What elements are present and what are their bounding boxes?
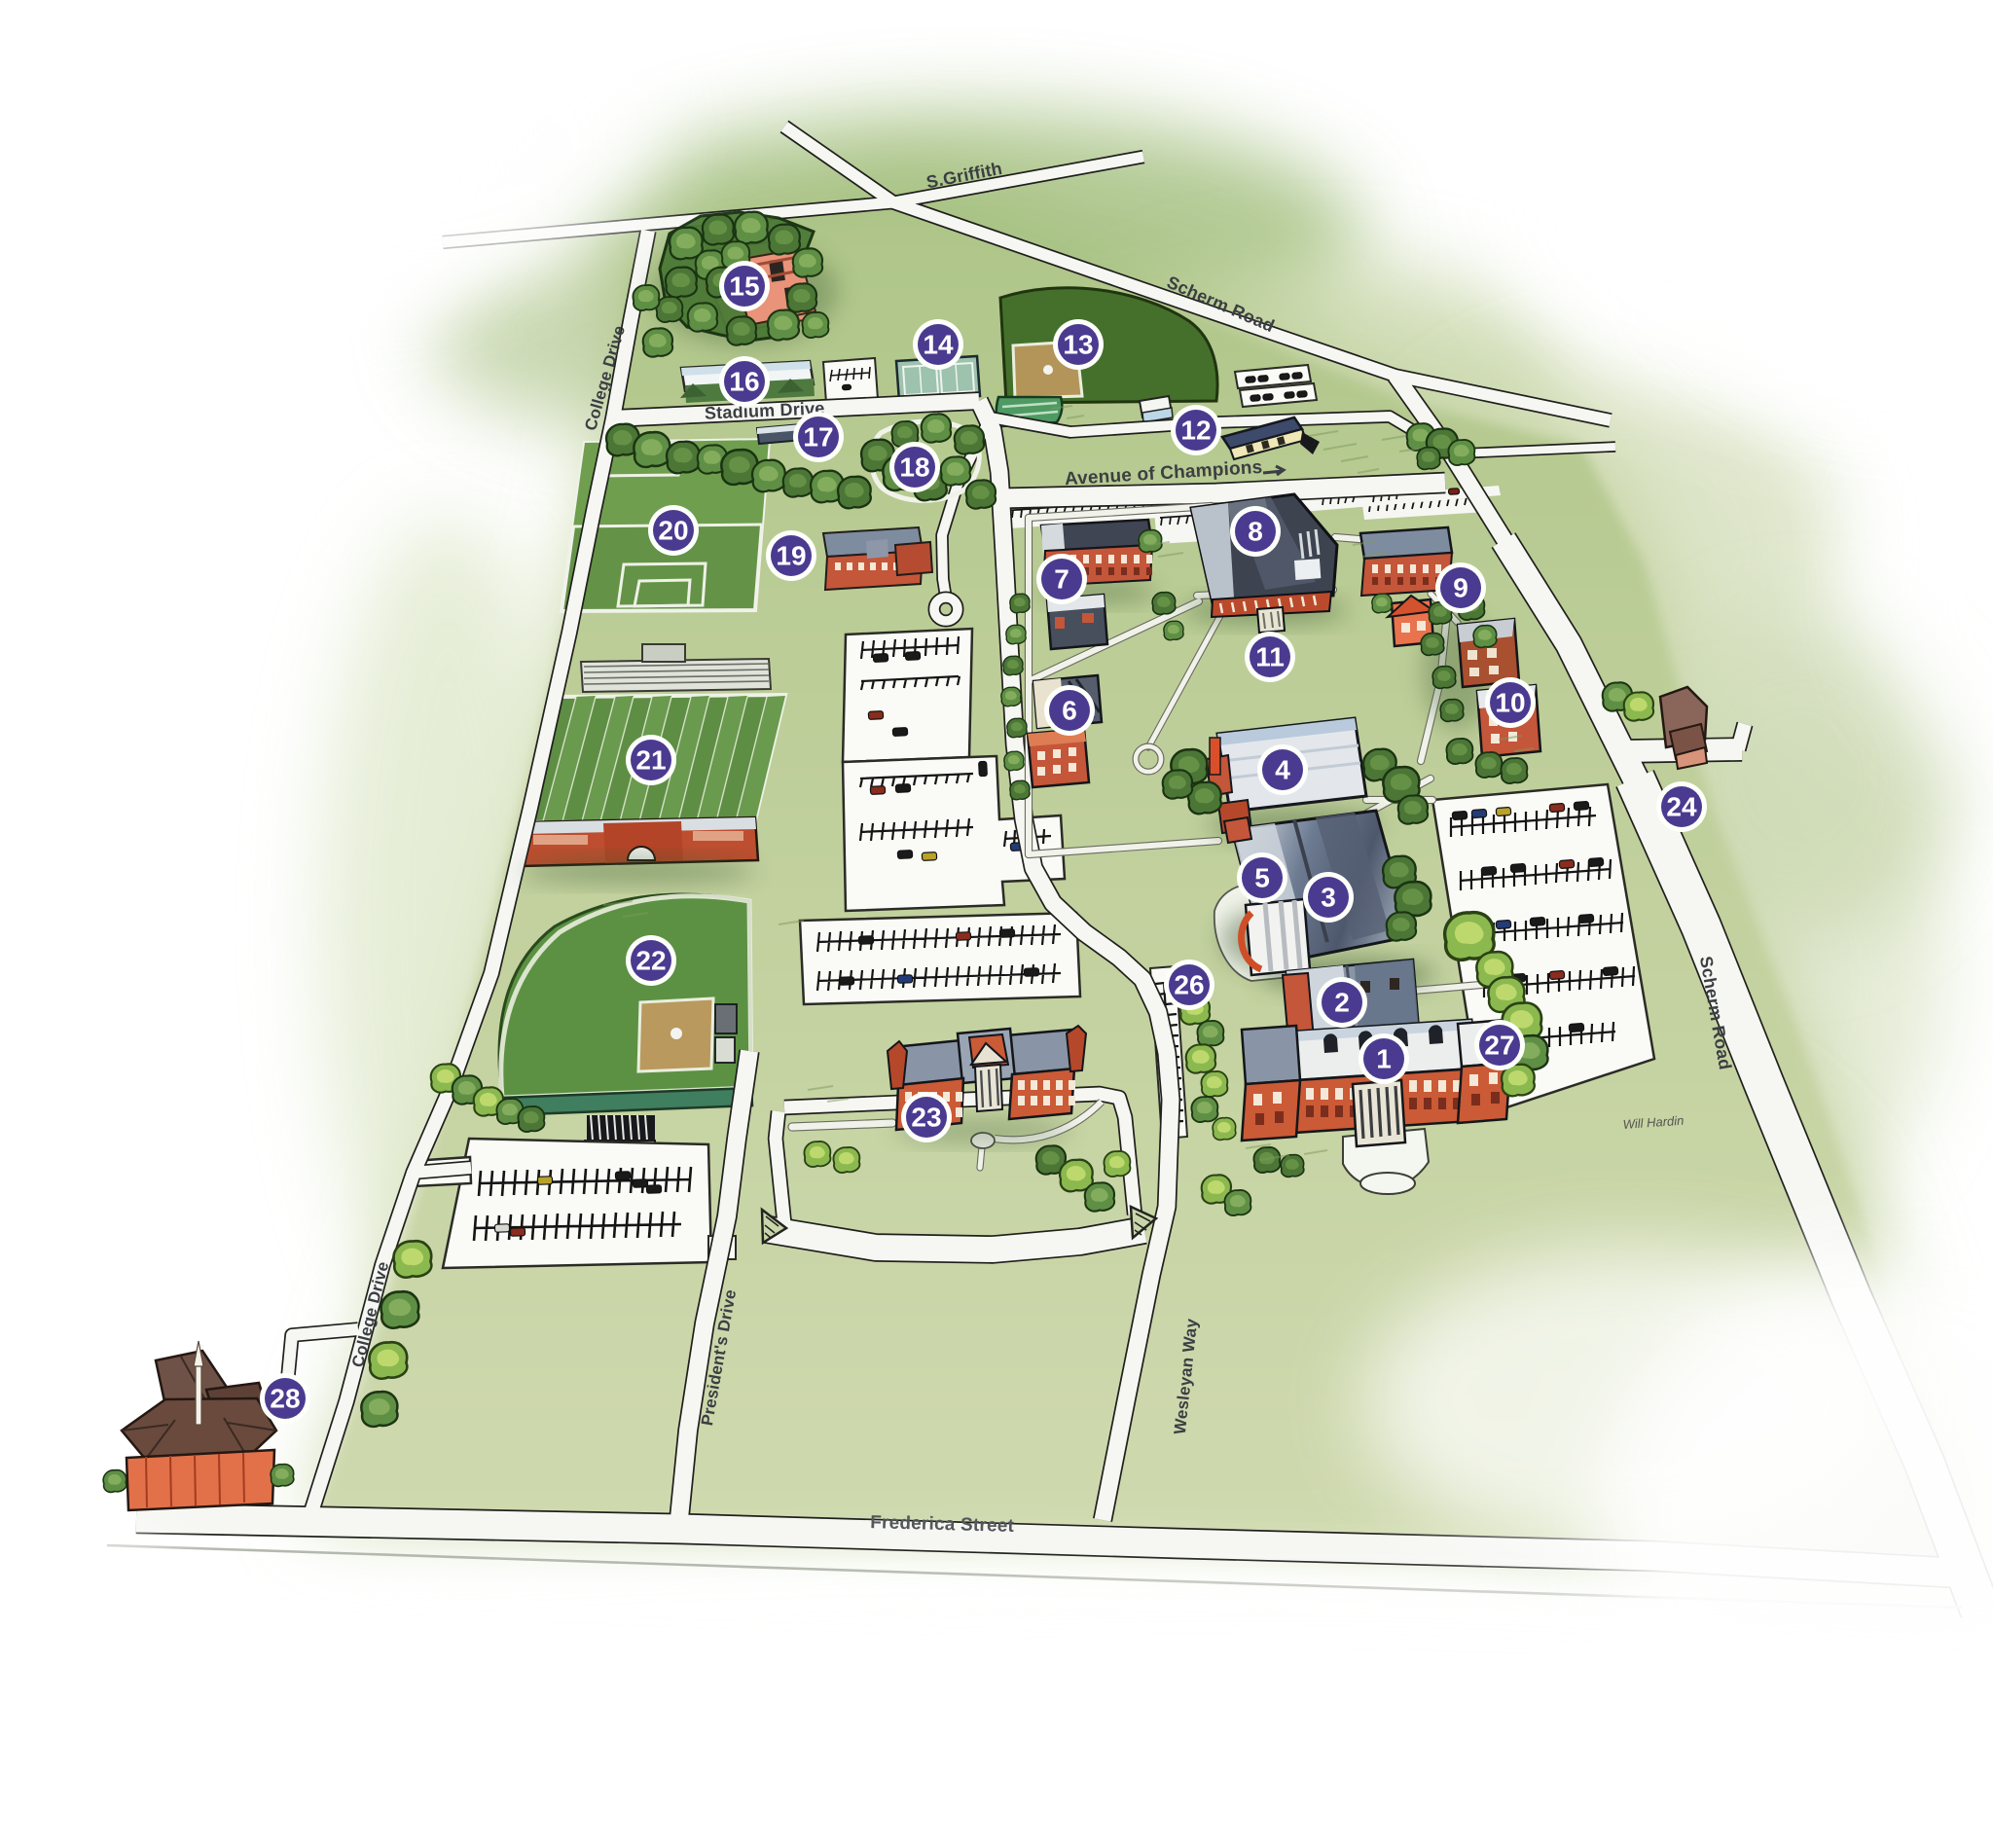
svg-text:16: 16 <box>729 367 759 397</box>
svg-text:9: 9 <box>1453 573 1468 603</box>
svg-text:5: 5 <box>1254 863 1270 893</box>
svg-text:26: 26 <box>1174 970 1204 1000</box>
svg-text:7: 7 <box>1054 564 1069 595</box>
svg-text:22: 22 <box>635 946 666 976</box>
svg-text:21: 21 <box>635 745 666 776</box>
svg-text:18: 18 <box>899 453 929 483</box>
svg-text:14: 14 <box>923 330 954 360</box>
svg-text:11: 11 <box>1255 642 1285 672</box>
svg-text:Frederica Street: Frederica Street <box>870 1512 1015 1537</box>
svg-text:2: 2 <box>1334 988 1350 1018</box>
svg-text:19: 19 <box>776 541 806 571</box>
svg-text:27: 27 <box>1484 1031 1514 1061</box>
svg-text:6: 6 <box>1062 696 1077 726</box>
svg-text:20: 20 <box>658 516 688 546</box>
svg-text:1: 1 <box>1376 1044 1392 1074</box>
svg-text:10: 10 <box>1495 688 1525 718</box>
svg-text:28: 28 <box>270 1384 300 1414</box>
svg-text:15: 15 <box>729 272 759 302</box>
svg-text:23: 23 <box>911 1103 941 1133</box>
svg-text:8: 8 <box>1248 517 1263 547</box>
svg-text:13: 13 <box>1063 330 1093 360</box>
svg-text:12: 12 <box>1180 416 1211 446</box>
svg-text:3: 3 <box>1321 883 1336 913</box>
svg-text:17: 17 <box>803 422 833 453</box>
svg-text:24: 24 <box>1666 792 1697 822</box>
svg-text:4: 4 <box>1275 755 1290 785</box>
